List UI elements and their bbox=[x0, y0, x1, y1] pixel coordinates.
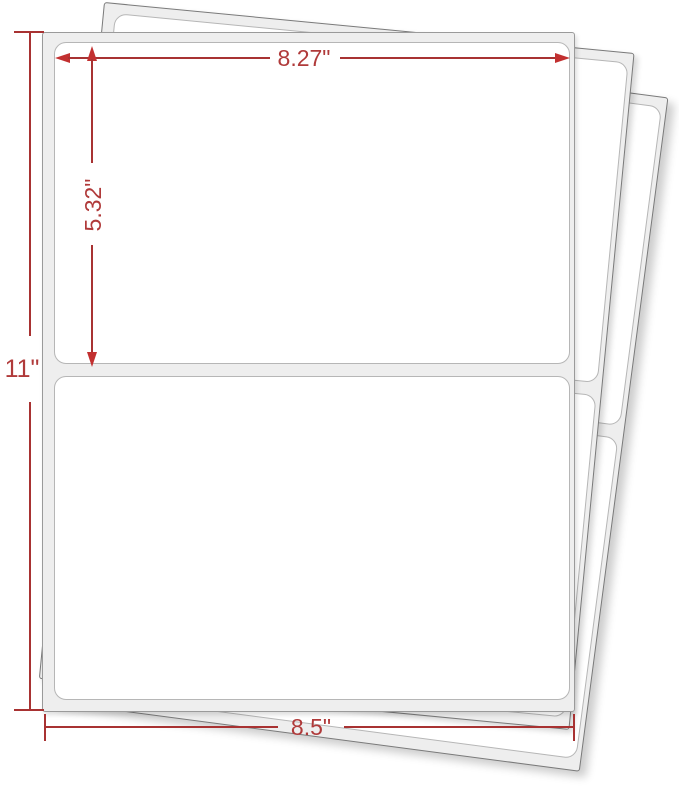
page-height-value: 11" bbox=[0, 356, 44, 383]
dimension-line bbox=[68, 57, 270, 59]
dimension-line bbox=[29, 33, 31, 336]
dimension-line bbox=[46, 726, 278, 728]
dimension-end-tick bbox=[573, 714, 575, 741]
front-sheet-bottom-label bbox=[54, 376, 570, 700]
dimension-line bbox=[29, 402, 31, 710]
dimension-line bbox=[91, 59, 93, 163]
dimension-line bbox=[340, 57, 556, 59]
dimension-line bbox=[91, 245, 93, 354]
arrow-right-icon bbox=[555, 53, 570, 63]
arrow-down-icon bbox=[87, 352, 97, 367]
page-width-value: 8.5" bbox=[276, 714, 346, 740]
label-sheet-product-diagram: 8.27" 5.32" 11" 8.5" bbox=[0, 0, 679, 791]
label-sheet-front bbox=[42, 32, 575, 712]
dimension-end-tick bbox=[14, 709, 44, 711]
dimension-line bbox=[344, 726, 574, 728]
front-sheet-top-label bbox=[54, 42, 570, 364]
label-width-value: 8.27" bbox=[266, 45, 342, 71]
label-height-value: 5.32" bbox=[80, 167, 106, 243]
